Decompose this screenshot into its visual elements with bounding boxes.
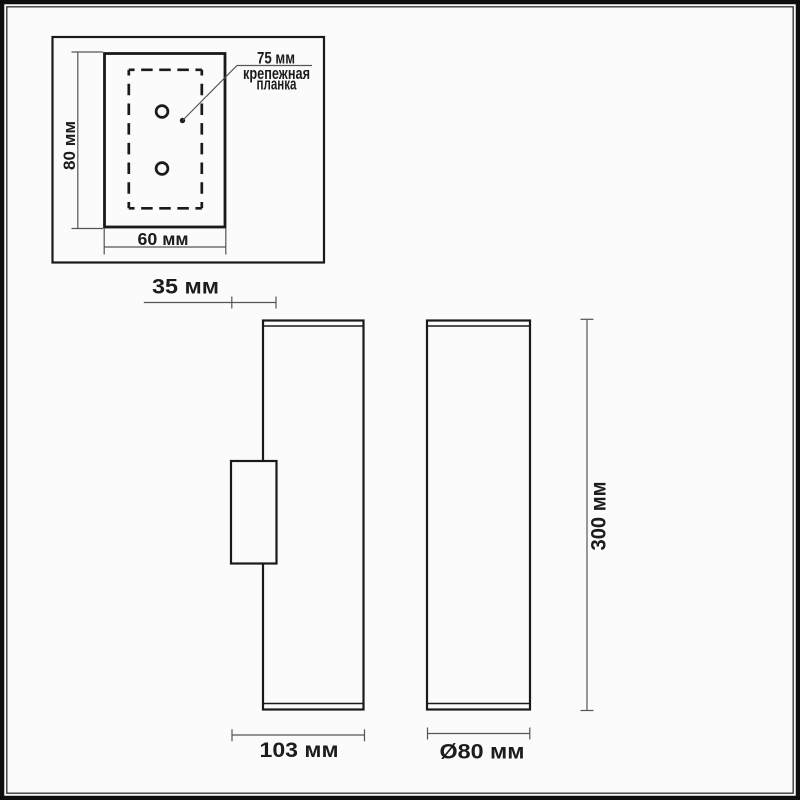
svg-text:103 мм: 103 мм xyxy=(260,738,339,762)
svg-text:300 мм: 300 мм xyxy=(587,482,611,551)
svg-text:планка: планка xyxy=(257,75,297,94)
svg-text:35 мм: 35 мм xyxy=(152,275,219,299)
svg-text:Ø80 мм: Ø80 мм xyxy=(440,740,525,764)
svg-text:80 мм: 80 мм xyxy=(61,121,79,170)
svg-text:60 мм: 60 мм xyxy=(138,229,189,249)
